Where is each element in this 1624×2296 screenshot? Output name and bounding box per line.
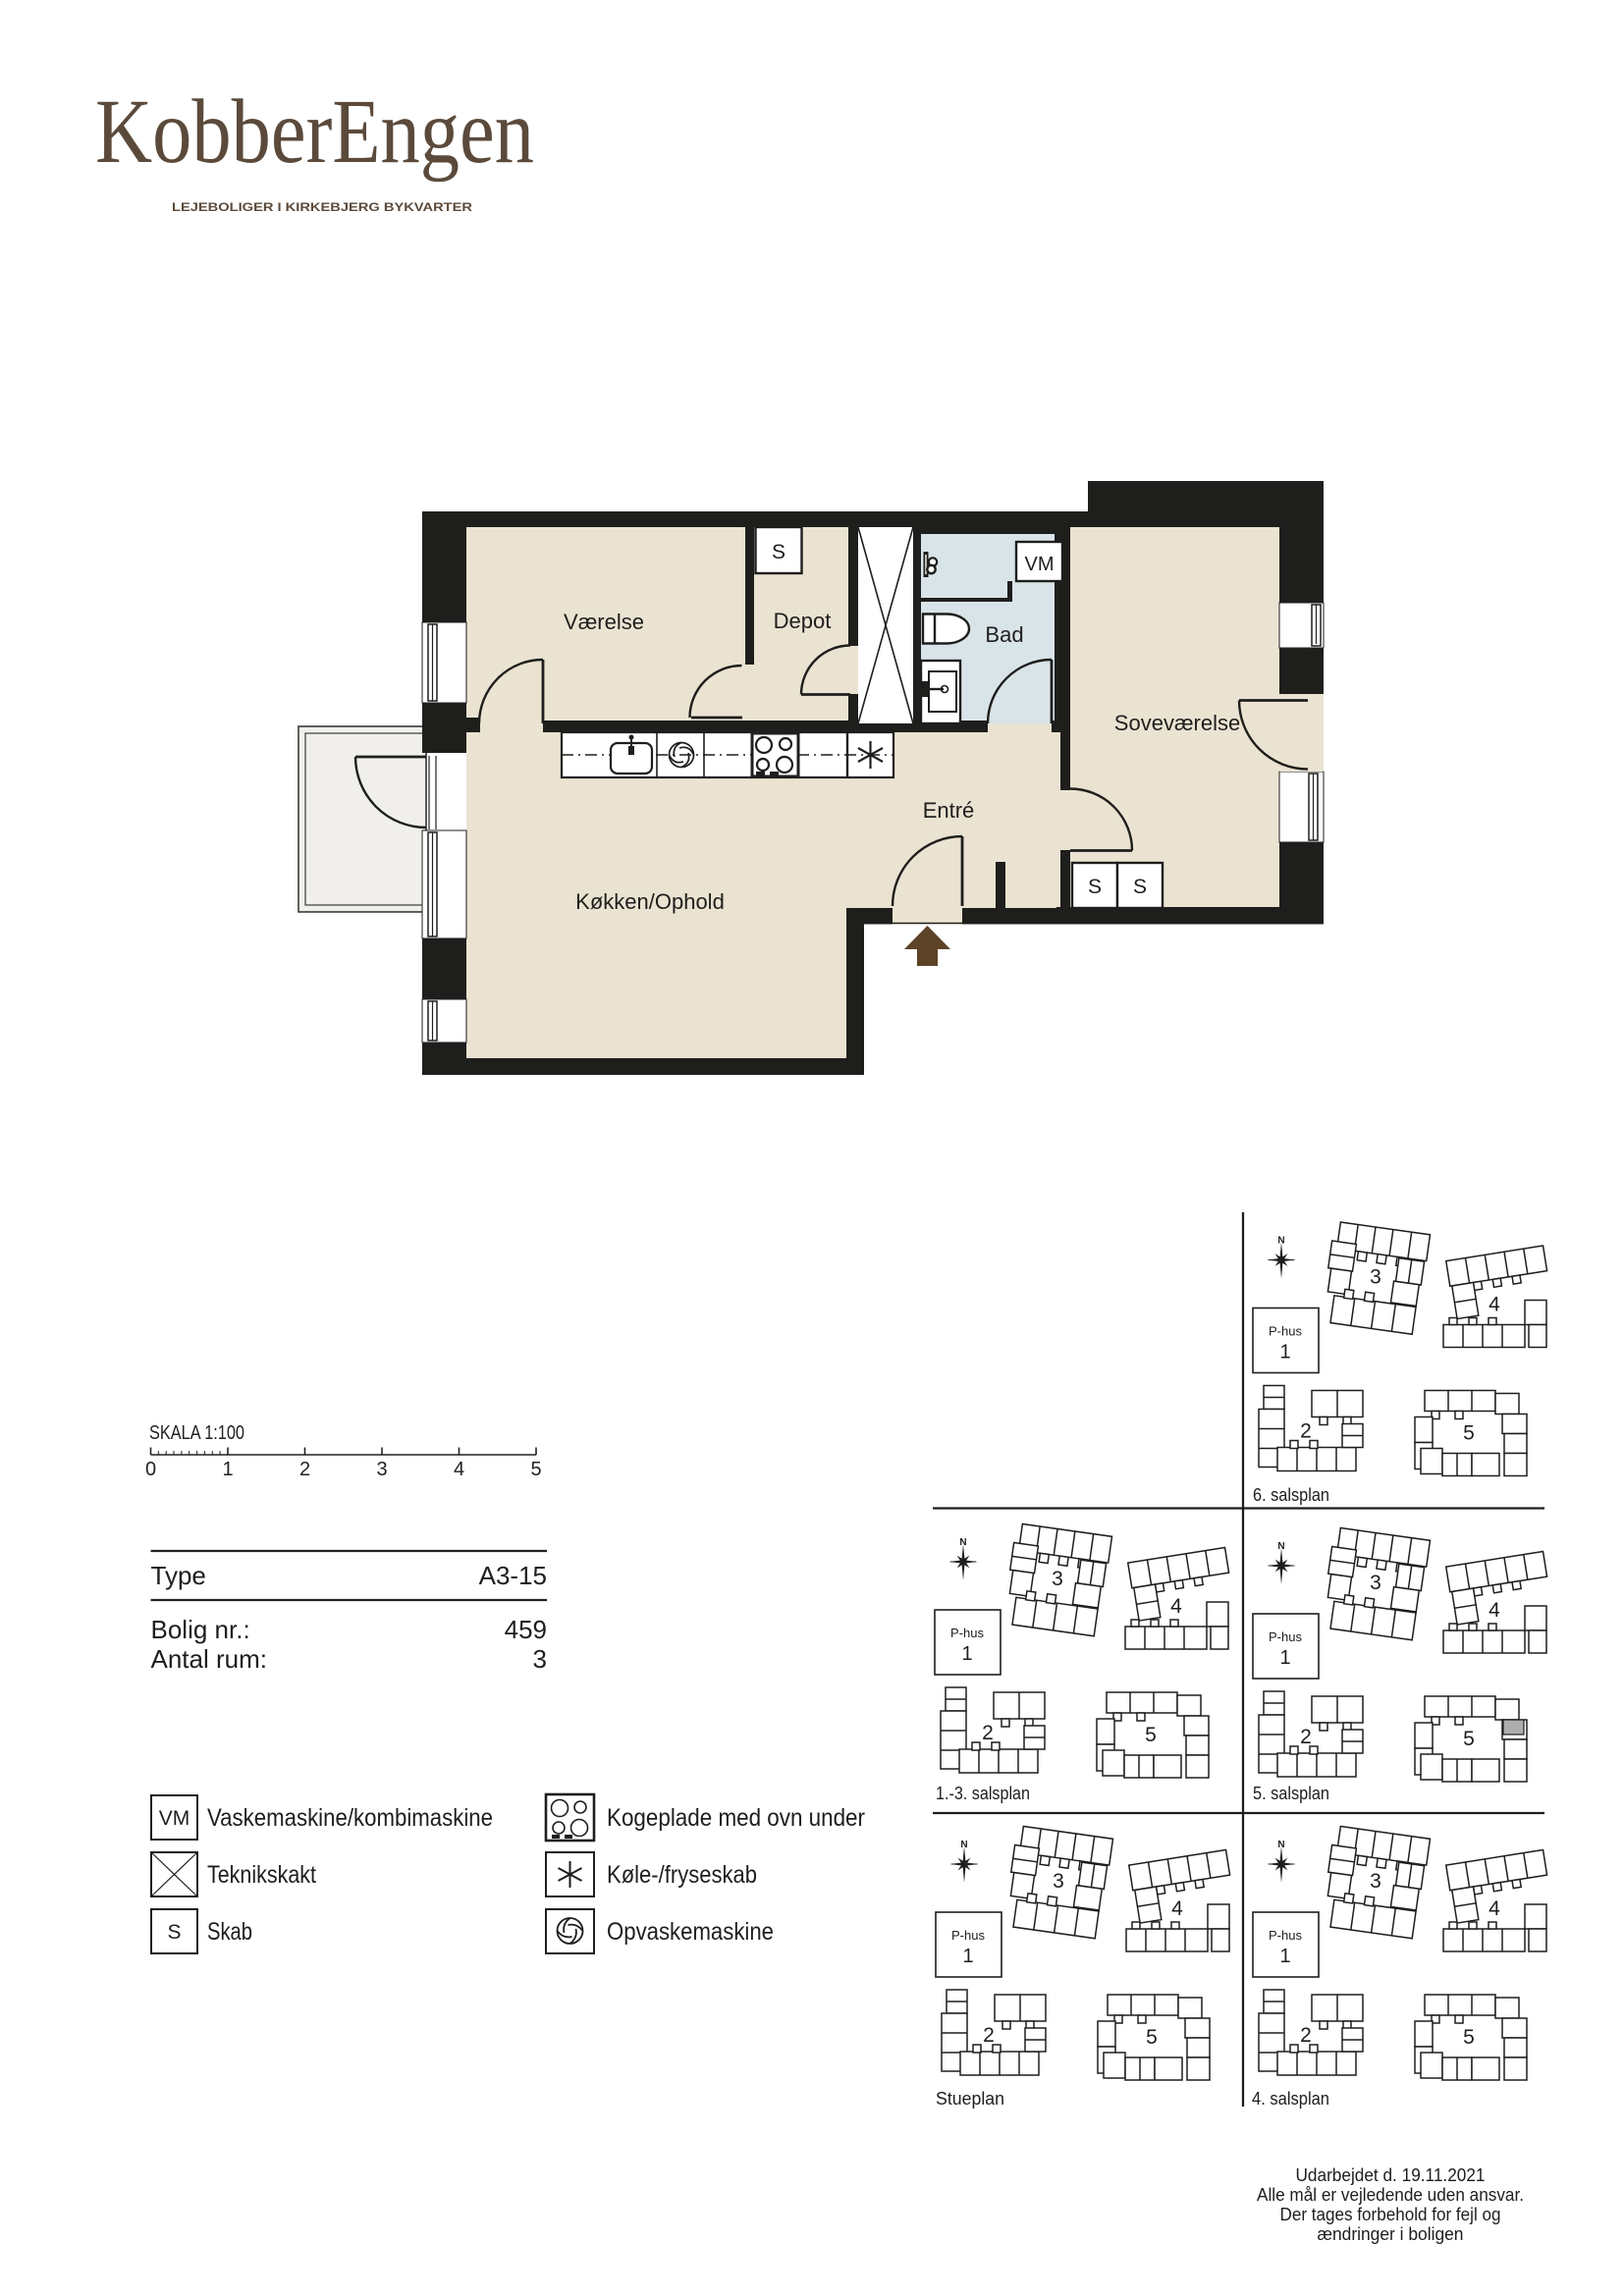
svg-text:Køle-/fryseskab: Køle-/fryseskab [607, 1861, 757, 1889]
svg-text:S: S [1088, 876, 1102, 898]
svg-text:3: 3 [376, 1459, 387, 1480]
svg-text:4. salsplan: 4. salsplan [1252, 2089, 1329, 2109]
svg-text:S: S [1133, 876, 1147, 898]
svg-text:S: S [772, 541, 785, 563]
svg-text:3: 3 [533, 1644, 547, 1674]
svg-text:4: 4 [454, 1459, 464, 1480]
svg-text:0: 0 [145, 1459, 156, 1480]
svg-text:Der tages forbehold for fejl o: Der tages forbehold for fejl og [1280, 2205, 1501, 2224]
svg-text:A3-15: A3-15 [479, 1561, 547, 1590]
svg-text:LEJEBOLIGER I KIRKEBJERG BYKVA: LEJEBOLIGER I KIRKEBJERG BYKVARTER [172, 200, 472, 214]
svg-text:Udarbejdet d. 19.11.2021: Udarbejdet d. 19.11.2021 [1296, 2165, 1486, 2185]
svg-text:VM: VM [1025, 554, 1055, 575]
svg-text:ændringer i boligen: ændringer i boligen [1318, 2224, 1464, 2244]
svg-text:1.-3. salsplan: 1.-3. salsplan [936, 1784, 1030, 1803]
svg-text:SKALA 1:100: SKALA 1:100 [149, 1422, 244, 1444]
svg-text:1: 1 [222, 1459, 233, 1480]
svg-text:Soveværelse: Soveværelse [1114, 711, 1240, 735]
svg-text:KobberEngen: KobberEngen [95, 81, 534, 183]
svg-text:Skab: Skab [207, 1918, 252, 1946]
svg-text:2: 2 [299, 1459, 310, 1480]
svg-text:5: 5 [530, 1459, 541, 1480]
svg-text:Bolig nr.:: Bolig nr.: [151, 1615, 250, 1644]
svg-text:Teknikskakt: Teknikskakt [207, 1861, 316, 1889]
svg-text:5. salsplan: 5. salsplan [1253, 1784, 1329, 1803]
svg-text:459: 459 [505, 1615, 547, 1644]
svg-text:Opvaskemaskine: Opvaskemaskine [607, 1918, 774, 1946]
svg-text:VM: VM [159, 1807, 190, 1830]
svg-text:Vaskemaskine/kombimaskine: Vaskemaskine/kombimaskine [207, 1804, 493, 1832]
svg-text:Køkken/Ophold: Køkken/Ophold [575, 889, 725, 914]
svg-text:Stueplan: Stueplan [936, 2089, 1004, 2109]
svg-text:Værelse: Værelse [564, 610, 644, 634]
svg-text:6. salsplan: 6. salsplan [1253, 1485, 1329, 1505]
svg-text:S: S [167, 1921, 181, 1944]
svg-text:Entré: Entré [923, 798, 975, 823]
svg-text:Type: Type [151, 1561, 206, 1590]
svg-text:Antal rum:: Antal rum: [151, 1644, 268, 1674]
svg-text:Alle mål er vejledende uden an: Alle mål er vejledende uden ansvar. [1257, 2185, 1524, 2205]
svg-text:Depot: Depot [774, 609, 832, 633]
svg-text:Kogeplade med ovn under: Kogeplade med ovn under [607, 1804, 865, 1832]
svg-text:Bad: Bad [985, 622, 1023, 647]
